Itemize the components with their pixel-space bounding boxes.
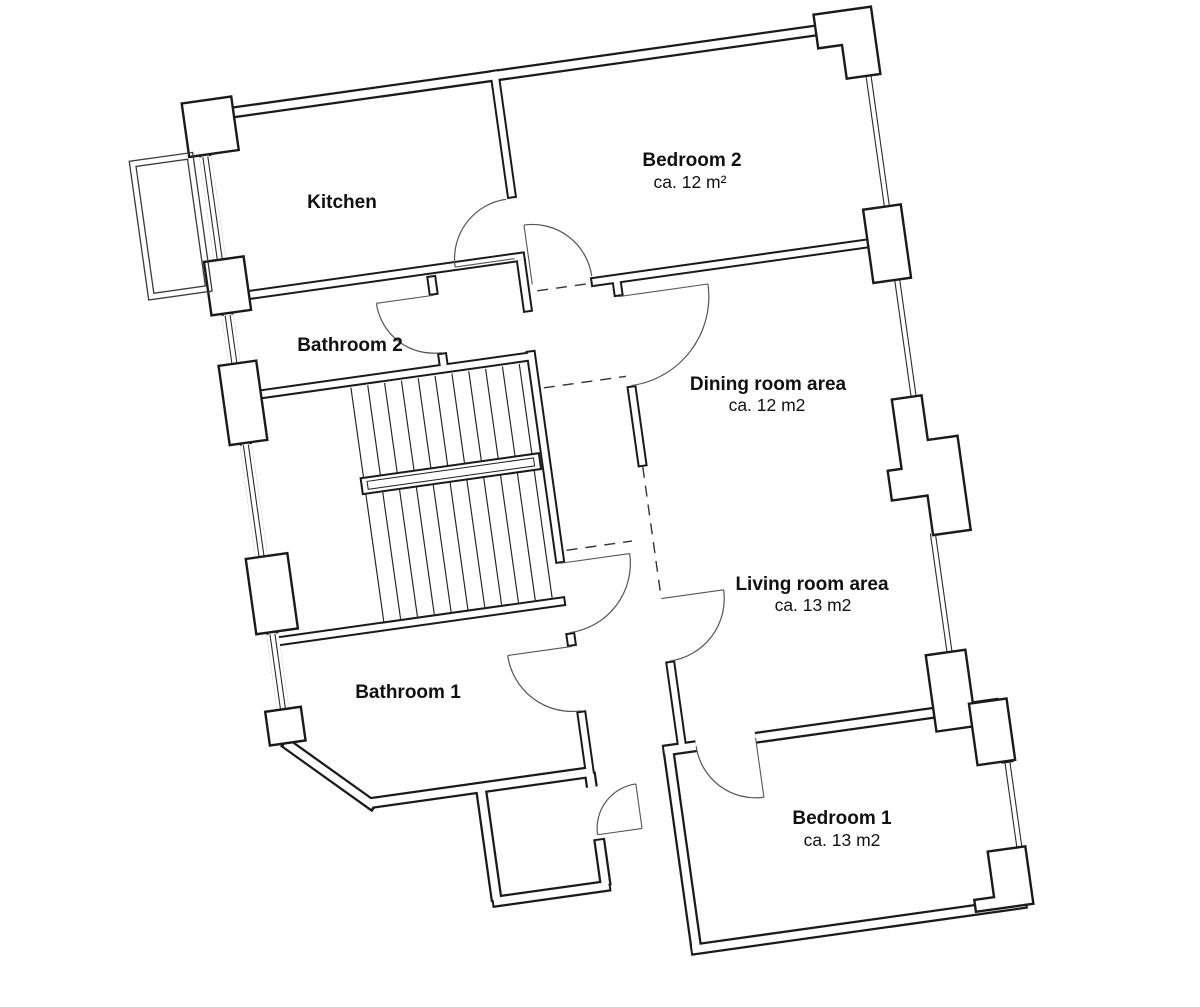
- pier-right-chimney: [878, 391, 971, 540]
- pier-right-2: [926, 650, 976, 732]
- pier-top-right: [813, 7, 880, 82]
- label-bathroom2: Bathroom 2: [297, 335, 403, 356]
- plan-rotated-group: [122, 1, 1035, 1007]
- pier-left-3: [246, 553, 298, 634]
- door-bathroom1: [508, 646, 581, 719]
- label-living-area: ca. 13 m2: [775, 595, 852, 615]
- door-dining-opening: [619, 284, 721, 386]
- pier-bedroom1-topright: [969, 698, 1015, 765]
- pier-top-left: [182, 97, 239, 157]
- door-hall-stairs: [560, 554, 639, 633]
- label-bedroom1-area: ca. 13 m2: [804, 830, 881, 850]
- staircase: [348, 363, 559, 622]
- wall-piers: [180, 1, 1036, 1006]
- label-bedroom1: Bedroom 1: [792, 808, 892, 829]
- label-bathroom1: Bathroom 1: [355, 682, 461, 703]
- door-extension: [591, 784, 642, 835]
- label-bedroom2-area: ca. 12 m²: [654, 172, 727, 192]
- door-living: [661, 590, 732, 661]
- label-dining: Dining room area: [690, 374, 847, 395]
- stair-treads-lower: [366, 470, 552, 621]
- balcony: [129, 152, 212, 300]
- interior-walls: [193, 17, 971, 819]
- label-kitchen: Kitchen: [307, 192, 377, 213]
- label-living: Living room area: [735, 574, 889, 595]
- exterior-walls: [189, 12, 1027, 1002]
- floor-plan-svg: Kitchen Bedroom 2 ca. 12 m² Bathroom 2 D…: [0, 0, 1200, 1007]
- label-bedroom2: Bedroom 2: [642, 150, 741, 171]
- pier-left-4: [265, 707, 305, 746]
- door-bedroom1: [696, 738, 764, 806]
- floor-plan-page: Kitchen Bedroom 2 ca. 12 m² Bathroom 2 D…: [0, 0, 1200, 1007]
- pier-bedroom1-bottomright: [968, 846, 1034, 912]
- pier-right-1: [863, 204, 911, 283]
- pier-left-2: [219, 361, 268, 446]
- door-swings: [365, 173, 782, 855]
- wall-cores: [191, 14, 1027, 1002]
- label-dining-area: ca. 12 m2: [729, 395, 806, 415]
- door-bedroom2: [524, 217, 592, 285]
